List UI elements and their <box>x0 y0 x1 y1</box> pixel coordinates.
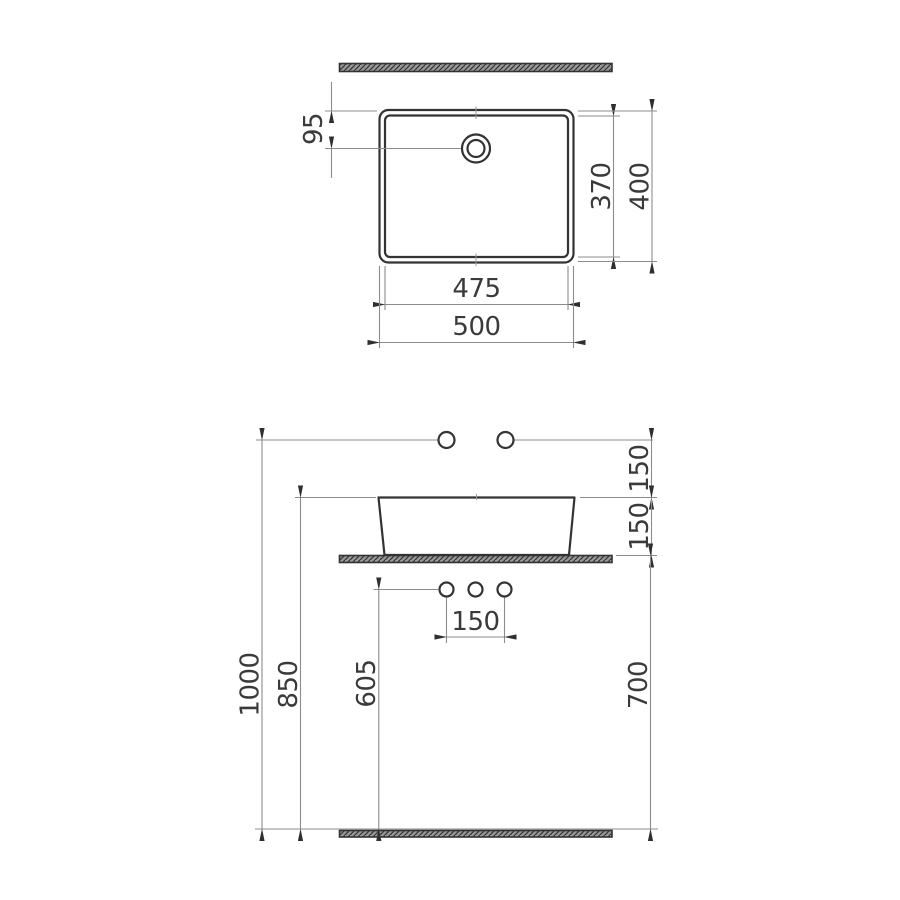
dim-supply-to-rim: 150 <box>580 440 657 498</box>
top-view: 95 370 400 475 500 <box>299 64 657 349</box>
dim-label-700: 700 <box>624 661 654 709</box>
basin-rim-outline <box>380 110 574 263</box>
dim-label-150-spacing: 150 <box>451 607 499 637</box>
dim-label-475: 475 <box>452 274 500 304</box>
dim-label-1000: 1000 <box>236 652 266 716</box>
drain-hole-center <box>469 583 483 597</box>
dim-counter-height: 700 <box>624 556 654 830</box>
water-supply-hole-left <box>439 432 455 448</box>
countertop-bar <box>340 556 613 563</box>
dim-inner-width: 475 <box>385 266 568 310</box>
drain-hole-right <box>498 583 512 597</box>
front-view: 150 150 150 605 700 <box>236 432 659 837</box>
dim-inner-depth: 370 <box>578 116 620 257</box>
dim-label-400: 400 <box>626 162 656 210</box>
drawing-canvas: 95 370 400 475 500 <box>0 0 900 900</box>
faucet-hole <box>462 135 490 163</box>
water-supply-hole-right <box>498 432 514 448</box>
dim-drain-spacing: 150 <box>447 598 505 644</box>
drain-hole-left <box>440 583 454 597</box>
basin-side-profile <box>379 498 575 556</box>
dim-label-500: 500 <box>452 312 500 342</box>
wall-section-bar <box>340 64 613 72</box>
dim-supply-height: 1000 <box>236 440 266 829</box>
dim-rim-to-counter: 150 <box>616 498 657 556</box>
dim-drain-height: 605 <box>352 590 438 830</box>
floor-bar <box>340 831 613 838</box>
dim-label-95: 95 <box>299 113 329 145</box>
dim-label-370: 370 <box>587 162 617 210</box>
technical-drawing: 95 370 400 475 500 <box>0 0 900 900</box>
dim-label-850: 850 <box>274 660 304 708</box>
dim-label-150-upper: 150 <box>625 444 655 492</box>
dim-label-150-lower: 150 <box>625 502 655 550</box>
dim-label-605: 605 <box>352 659 382 707</box>
